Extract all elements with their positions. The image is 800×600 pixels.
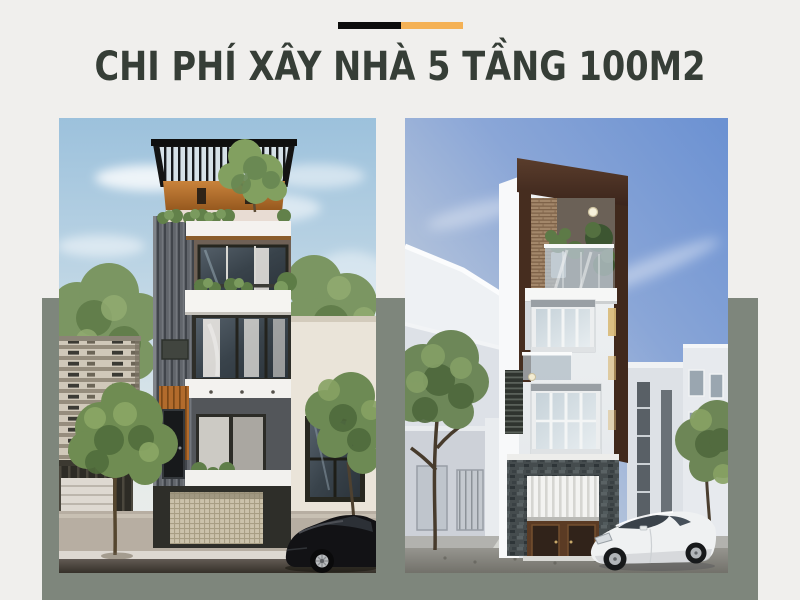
- decoration-bar-black: [338, 22, 401, 29]
- decoration-bar-orange: [401, 22, 463, 29]
- main-house: [151, 139, 297, 548]
- left-house-rendering: [59, 118, 376, 573]
- left-house-photo: [59, 118, 376, 573]
- page-title: CHI PHÍ XÂY NHÀ 5 TẦNG 100M2: [64, 46, 736, 88]
- main-house: [499, 158, 628, 561]
- right-house-rendering: [405, 118, 728, 573]
- decoration-bars: [0, 22, 800, 29]
- infographic-page: CHI PHÍ XÂY NHÀ 5 TẦNG 100M2: [0, 0, 800, 600]
- right-house-photo: [405, 118, 728, 573]
